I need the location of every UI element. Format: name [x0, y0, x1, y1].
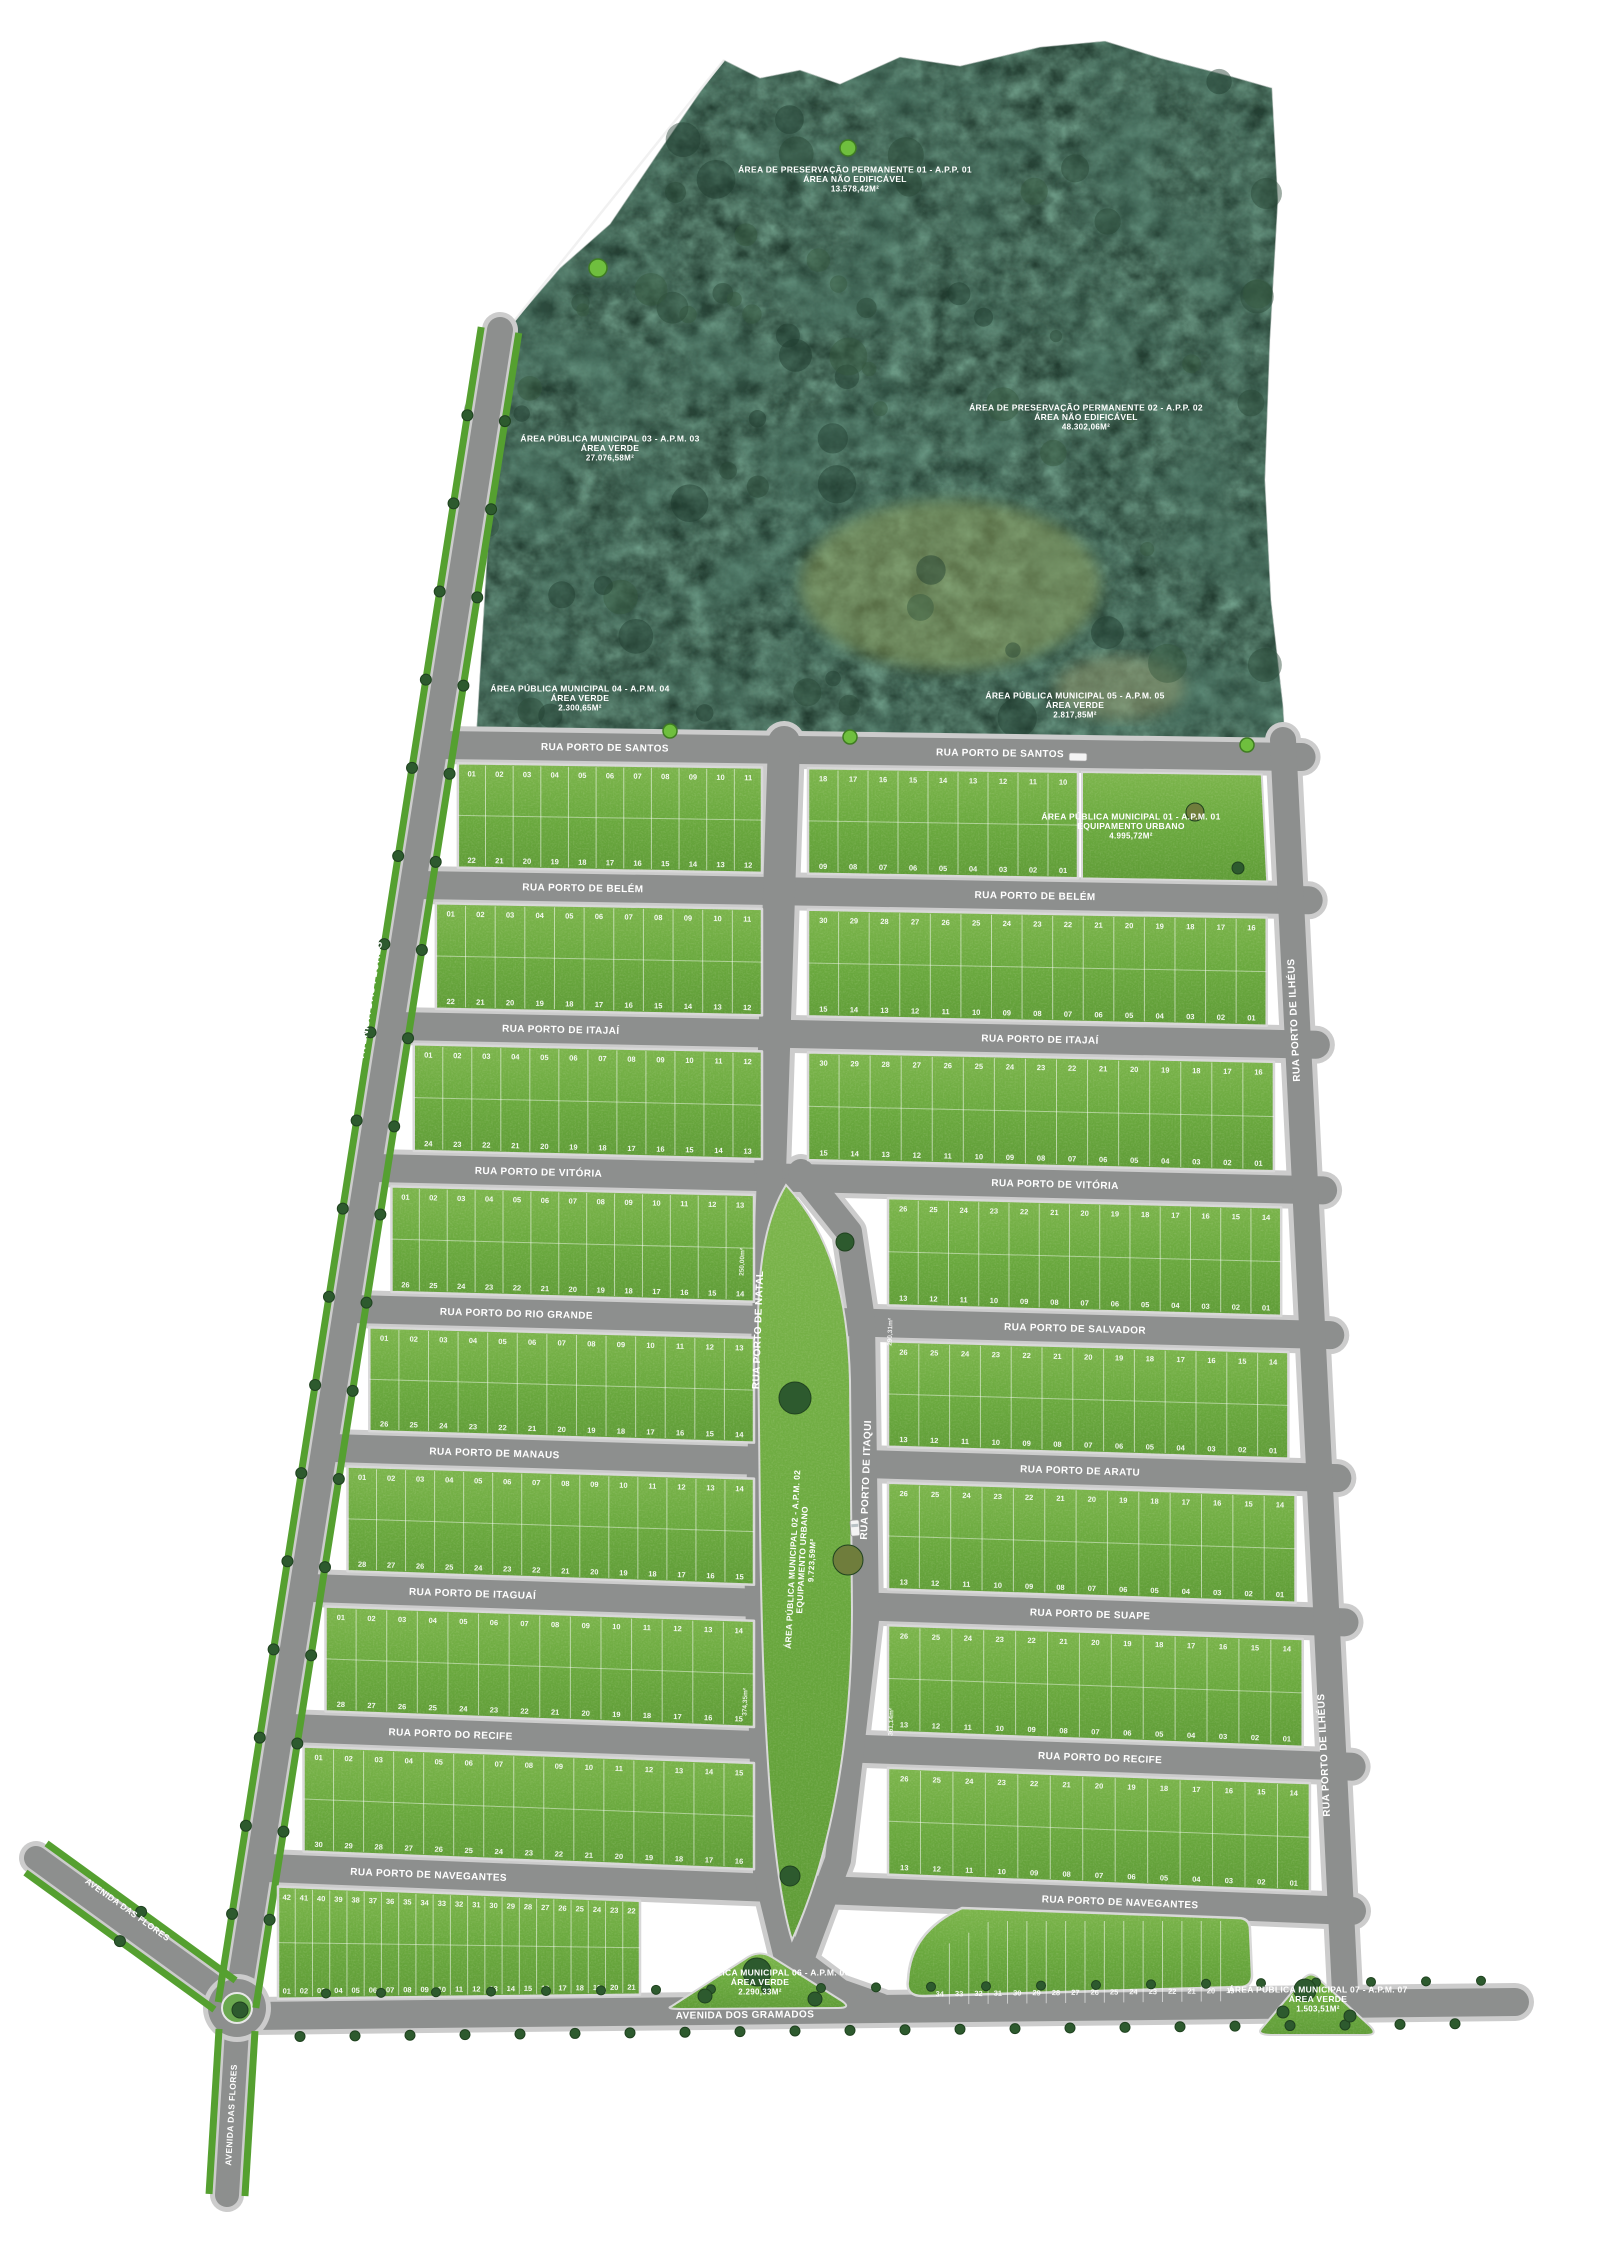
lot-number: 25: [972, 918, 980, 927]
lot-number: 03: [506, 910, 514, 919]
lot-number: 02: [1238, 1445, 1247, 1454]
forest-canopy: [517, 376, 542, 401]
lot-number: 08: [1056, 1583, 1065, 1592]
site-plan-map: 0122022103200419051806170716081509141013…: [0, 0, 1600, 2241]
lot-number: 05: [1146, 1442, 1155, 1451]
lot-number: 06: [909, 863, 917, 872]
car: [850, 1520, 860, 1537]
lot-number: 13: [735, 1343, 744, 1352]
lot-number: 21: [1053, 1352, 1062, 1361]
lot-number: 11: [965, 1866, 973, 1875]
lot-number: 12: [999, 777, 1007, 786]
lot-number: 10: [990, 1296, 999, 1305]
forest-canopy: [1148, 644, 1187, 683]
tree: [735, 2027, 745, 2037]
lot-number: 10: [997, 1867, 1006, 1876]
lot-number: 18: [1186, 922, 1194, 931]
label-apm04-area: 2.300,65M²: [558, 704, 602, 713]
tree: [833, 1545, 863, 1575]
lot-number: 09: [1030, 1868, 1039, 1877]
lot-number: 23: [453, 1140, 462, 1149]
tree: [323, 1291, 334, 1302]
forest-canopy: [665, 182, 686, 203]
lot-number: 03: [523, 770, 531, 779]
forest-canopy: [635, 273, 668, 306]
lot-number: 18: [675, 1854, 684, 1863]
tree: [310, 1379, 321, 1390]
lot-number: 20: [1130, 1065, 1139, 1074]
lot-number: 16: [1213, 1498, 1222, 1507]
tree: [114, 1936, 125, 1947]
lot-number: 17: [705, 1855, 714, 1864]
lot-number: 11: [455, 1985, 463, 1994]
lot-number: 07: [569, 1197, 578, 1206]
lot-number: 21: [541, 1284, 550, 1293]
lot-number: 05: [578, 771, 586, 780]
lot-number: 16: [633, 859, 641, 868]
lot-number: 16: [1219, 1642, 1228, 1651]
lot-number: 01: [358, 1473, 367, 1482]
forest-canopy: [1182, 354, 1201, 373]
lot-number: 22: [482, 1141, 491, 1150]
lot-number: 12: [931, 1579, 940, 1588]
lot-number: 14: [735, 1484, 744, 1493]
lot-number: 09: [624, 1198, 633, 1207]
lot-number: 16: [1225, 1786, 1234, 1795]
lot-number: 22: [627, 1906, 636, 1915]
lot-number: 25: [575, 1904, 584, 1913]
label-apm01-line1: ÁREA PÚBLICA MUNICIPAL 01 - A.P.M. 01: [1041, 811, 1220, 822]
tree: [472, 592, 483, 603]
lot-number: 07: [1084, 1441, 1093, 1450]
lot-number: 05: [351, 1986, 360, 1995]
lot-number: 25: [929, 1205, 938, 1214]
lot-number: 15: [819, 1148, 828, 1157]
lot-number: 09: [1006, 1153, 1015, 1162]
lot-number: 11: [714, 1056, 722, 1065]
lot-number: 17: [1187, 1641, 1196, 1650]
lot-number: 09: [581, 1621, 590, 1630]
lot-number: 12: [932, 1721, 941, 1730]
forest-canopy: [793, 678, 821, 706]
lot-number: 08: [1050, 1298, 1059, 1307]
tree: [790, 2026, 800, 2036]
tree: [900, 2025, 910, 2035]
label-apm03-line1: ÁREA PÚBLICA MUNICIPAL 03 - A.P.M. 03: [520, 433, 699, 444]
lot-number: 20: [569, 1285, 578, 1294]
tree: [448, 498, 459, 509]
forest-canopy: [1243, 279, 1273, 309]
lot-number: 28: [337, 1700, 346, 1709]
forest-canopy: [514, 405, 530, 421]
lot-number: 10: [652, 1199, 661, 1208]
lot-number: 26: [899, 1489, 908, 1498]
lot-number: 19: [612, 1710, 621, 1719]
tree: [292, 1738, 303, 1749]
lot-number: 08: [1059, 1726, 1068, 1735]
lot-number: 08: [403, 1985, 412, 1994]
tree: [845, 2025, 855, 2035]
lot-number: 14: [1269, 1358, 1278, 1367]
lot-number: 19: [587, 1426, 596, 1435]
tree: [982, 1982, 991, 1991]
lot-number: 04: [469, 1336, 478, 1345]
lot-number: 01: [380, 1334, 389, 1343]
tree: [227, 1908, 238, 1919]
lot-number: 04: [1155, 1011, 1164, 1020]
car-body: [850, 1520, 860, 1537]
lot-number: 16: [1207, 1356, 1216, 1365]
lot-number: 05: [1130, 1156, 1139, 1165]
lot-number: 25: [930, 1348, 939, 1357]
lot-number: 13: [704, 1625, 713, 1634]
lot-number: 27: [911, 917, 919, 926]
label-apm06-area: 2.290,33M²: [738, 1988, 782, 1997]
lot-number: 17: [595, 1000, 603, 1009]
lot-number: 02: [1244, 1589, 1253, 1598]
lot-number: 03: [457, 1194, 466, 1203]
lot-number: 24: [494, 1847, 503, 1856]
lot-number: 15: [705, 1429, 714, 1438]
lot-number: 28: [524, 1902, 533, 1911]
lot-number: 12: [743, 1057, 752, 1066]
tree: [515, 2029, 525, 2039]
lot-number: 14: [939, 776, 948, 785]
lot-area-label: 250,00m²: [739, 1247, 747, 1276]
lot-number: 06: [528, 1338, 537, 1347]
lot-number: 09: [1027, 1725, 1036, 1734]
lot-number: 02: [1217, 1013, 1225, 1022]
lot-number: 18: [643, 1711, 652, 1720]
lot-number: 07: [633, 772, 641, 781]
lot-number: 20: [1091, 1638, 1100, 1647]
lot-number: 13: [713, 1002, 721, 1011]
lot-number: 27: [404, 1843, 413, 1852]
street-label-gramados: AVENIDA DOS GRAMADOS: [676, 2009, 815, 2021]
lot-number: 13: [743, 1147, 752, 1156]
label-apm06-line1: ÁREA PÚBLICA MUNICIPAL 06 - A.P.M. 06: [670, 1967, 849, 1978]
lot-number: 17: [1192, 1785, 1201, 1794]
lot-number: 05: [540, 1053, 549, 1062]
tree: [375, 1209, 386, 1220]
lot-number: 23: [610, 1906, 619, 1915]
lot-number: 18: [578, 858, 586, 867]
lot-number: 01: [1276, 1590, 1285, 1599]
tree: [1065, 2023, 1075, 2033]
lot-number: 14: [1262, 1213, 1271, 1222]
lot-number: 22: [1022, 1351, 1031, 1360]
lot-number: 02: [344, 1754, 353, 1763]
street-label-h1-right: RUA PORTO DE SANTOS: [936, 747, 1064, 760]
forest-canopy: [974, 308, 993, 327]
lot-number: 16: [704, 1713, 713, 1722]
lot-number: 14: [506, 1984, 516, 1993]
lot-number: 27: [541, 1903, 550, 1912]
forest-canopy: [742, 304, 761, 323]
lot-number: 06: [595, 912, 603, 921]
tree: [282, 1556, 293, 1567]
lot-number: 06: [1127, 1872, 1136, 1881]
lot-number: 14: [850, 1005, 859, 1014]
lot-number: 23: [1033, 920, 1041, 929]
lot-number: 18: [1155, 1640, 1164, 1649]
lot-number: 19: [550, 857, 558, 866]
lot-number: 02: [453, 1051, 462, 1060]
tree: [351, 1115, 362, 1126]
lot-number: 08: [849, 862, 857, 871]
lot-number: 12: [677, 1482, 686, 1491]
lot-number: 10: [585, 1763, 594, 1772]
lot-number: 05: [513, 1195, 522, 1204]
tree: [1277, 2006, 1289, 2018]
lot-number: 21: [1056, 1494, 1065, 1503]
lot-number: 23: [485, 1283, 494, 1292]
forest-canopy: [830, 275, 847, 292]
label-app01-line2: ÁREA NÃO EDIFICÁVEL: [803, 174, 907, 184]
lot-number: 07: [520, 1619, 529, 1628]
lot-number: 18: [617, 1427, 626, 1436]
tree: [1147, 1980, 1156, 1989]
tree: [296, 1468, 307, 1479]
tree: [1092, 1980, 1101, 1989]
lot-number: 23: [997, 1778, 1006, 1787]
lot-number: 08: [661, 772, 669, 781]
lot-number: 06: [490, 1618, 499, 1627]
lot-number: 22: [467, 856, 475, 865]
lot-number: 13: [899, 1578, 908, 1587]
lot-number: 20: [523, 857, 531, 866]
lot-number: 08: [654, 913, 662, 922]
lot-number: 41: [300, 1893, 309, 1902]
lot-number: 33: [438, 1899, 447, 1908]
lot-number: 29: [344, 1841, 353, 1850]
tree: [361, 1297, 372, 1308]
lot-number: 08: [1053, 1440, 1062, 1449]
lot-number: 30: [489, 1901, 498, 1910]
lot-number: 05: [565, 911, 573, 920]
lot-number: 24: [962, 1491, 971, 1500]
lot-number: 24: [424, 1139, 433, 1148]
lot-number: 02: [387, 1474, 396, 1483]
lot-number: 03: [482, 1052, 491, 1061]
label-apm04-line2: ÁREA VERDE: [551, 693, 609, 703]
lot-number: 07: [386, 1985, 395, 1994]
lot-number: 06: [464, 1758, 473, 1767]
lot-number: 09: [1025, 1582, 1034, 1591]
tree: [570, 2028, 580, 2038]
forest-canopy: [1140, 542, 1154, 556]
lot-number: 08: [1062, 1870, 1071, 1879]
lot-number: 02: [1232, 1303, 1241, 1312]
lot-number: 21: [551, 1708, 560, 1717]
lot-number: 10: [646, 1341, 655, 1350]
lot-number: 28: [881, 1060, 890, 1069]
lot-number: 05: [1160, 1873, 1169, 1882]
lot-number: 14: [714, 1146, 723, 1155]
forest-canopy: [818, 423, 848, 453]
lot-number: 03: [398, 1615, 407, 1624]
tree: [1285, 2021, 1295, 2031]
lot-number: 02: [1029, 865, 1037, 874]
tree: [333, 1473, 344, 1484]
lot-number: 03: [416, 1475, 425, 1484]
block-row7-right: 2613251224112310220921082007190618051704…: [888, 1625, 1303, 1747]
lot-number: 06: [1123, 1728, 1132, 1737]
lot-number: 20: [557, 1425, 566, 1434]
lot-number: 14: [1283, 1644, 1292, 1653]
tree: [927, 1982, 936, 1991]
lot-number: 23: [993, 1492, 1002, 1501]
lot-number: 07: [532, 1478, 541, 1487]
lot-number: 15: [524, 1984, 533, 1993]
lot-number: 20: [1088, 1495, 1097, 1504]
lot-number: 22: [1025, 1493, 1034, 1502]
lot-number: 25: [445, 1562, 454, 1571]
tree: [460, 2030, 470, 2040]
lot-number: 20: [581, 1709, 590, 1718]
lot-number: 24: [959, 1206, 968, 1215]
tree: [680, 2027, 690, 2037]
lot-number: 12: [744, 861, 752, 870]
lot-number: 03: [1225, 1876, 1234, 1885]
tree: [487, 1987, 496, 1996]
tree: [780, 1866, 800, 1886]
lot-number: 04: [485, 1195, 494, 1204]
lot-number: 26: [416, 1562, 425, 1571]
lot-number: 16: [680, 1288, 689, 1297]
lot-number: 18: [819, 774, 827, 783]
tree: [1120, 2022, 1130, 2032]
vehicle-body: [1069, 753, 1087, 761]
tree: [416, 945, 427, 956]
lot-number: 23: [503, 1564, 512, 1573]
lot-number: 17: [1217, 923, 1225, 932]
lot-number: 18: [565, 999, 573, 1008]
tree: [625, 2028, 635, 2038]
lot-number: 20: [1084, 1353, 1093, 1362]
lot-number: 29: [506, 1902, 515, 1911]
lot-number: 39: [334, 1895, 343, 1904]
lot-number: 15: [1251, 1643, 1260, 1652]
tree: [350, 2031, 360, 2041]
lot-area-label: 374,35m²: [742, 1687, 750, 1716]
lot-number: 22: [520, 1706, 529, 1715]
forest-canopy: [666, 122, 701, 157]
lot-number: 14: [735, 1430, 744, 1439]
lot-number: 19: [1119, 1496, 1128, 1505]
lot-number: 23: [995, 1635, 1004, 1644]
tree: [779, 1382, 811, 1414]
tree: [808, 1992, 822, 2006]
lot-number: 26: [900, 1632, 909, 1641]
lot-number: 06: [1094, 1010, 1102, 1019]
lot-number: 33: [955, 1989, 964, 1998]
lot-number: 08: [596, 1197, 605, 1206]
fan-grass-texture: [908, 1908, 1252, 1996]
lot-number: 03: [439, 1335, 448, 1344]
tree: [306, 1650, 317, 1661]
label-apm07-line1: ÁREA PÚBLICA MUNICIPAL 07 - A.P.M. 07: [1228, 1984, 1407, 1995]
tree: [1037, 1981, 1046, 1990]
label-apm05-line2: ÁREA VERDE: [1046, 700, 1104, 710]
tree: [1010, 2024, 1020, 2034]
lot-number: 07: [1095, 1871, 1104, 1880]
tree: [1477, 1976, 1486, 1985]
lot-number: 19: [1115, 1353, 1124, 1362]
tree: [698, 1989, 712, 2003]
forest-canopy: [618, 619, 653, 654]
forest-canopy: [697, 160, 736, 199]
lot-number: 34: [935, 1989, 945, 1998]
lot-number: 10: [612, 1622, 621, 1631]
forest-canopy: [1021, 178, 1048, 205]
lot-number: 23: [525, 1848, 534, 1857]
lot-number: 01: [1247, 1013, 1255, 1022]
block-row3-right: 3015291428132712261125102409230822072106…: [808, 1052, 1274, 1171]
tree: [337, 1203, 348, 1214]
lot-number: 08: [627, 1055, 636, 1064]
lot-number: 13: [675, 1766, 684, 1775]
forest-canopy: [873, 401, 888, 416]
lot-number: 23: [992, 1350, 1001, 1359]
lot-number: 27: [913, 1060, 922, 1069]
block-row2-right: 3015291428132712261125102409230822072106…: [808, 910, 1267, 1026]
lot-number: 14: [1276, 1500, 1285, 1509]
lot-number: 21: [1099, 1064, 1108, 1073]
lot-number: 04: [1182, 1587, 1191, 1596]
lot-number: 04: [1161, 1157, 1170, 1166]
lot-number: 13: [716, 860, 724, 869]
block-row6-right: 2613251224112310220921082007190618051704…: [888, 1483, 1296, 1603]
label-app02-line2: ÁREA NÃO EDIFICÁVEL: [1034, 412, 1138, 422]
lot-number: 15: [909, 776, 917, 785]
lot-number: 30: [314, 1840, 323, 1849]
lot-number: 18: [1150, 1497, 1159, 1506]
street-label-h1-left: RUA PORTO DE SANTOS: [541, 742, 669, 755]
lot-number: 05: [459, 1617, 468, 1626]
lot-number: 11: [962, 1580, 970, 1589]
lot-number: 31: [994, 1989, 1003, 1998]
forest-canopy: [1091, 616, 1124, 649]
tree: [393, 851, 404, 862]
tree-bright: [1240, 738, 1254, 752]
lot-number: 12: [913, 1151, 922, 1160]
lot-number: 25: [428, 1703, 437, 1712]
lot-number: 16: [676, 1428, 685, 1437]
tree: [278, 1826, 289, 1837]
forest-canopy: [916, 555, 945, 584]
lot-number: 18: [598, 1143, 607, 1152]
lot-number: 07: [598, 1054, 607, 1063]
lot-number: 14: [1289, 1788, 1298, 1797]
lot-number: 17: [849, 775, 857, 784]
forest-canopy: [1248, 648, 1282, 682]
lot-number: 08: [1033, 1009, 1041, 1018]
lot-number: 22: [498, 1423, 507, 1432]
lot-number: 13: [900, 1863, 909, 1872]
tree: [389, 1121, 400, 1132]
label-apm01-area: 4.995,72M²: [1109, 832, 1153, 841]
lot-number: 17: [1182, 1497, 1191, 1506]
tree: [264, 1914, 275, 1925]
lot-number: 25: [409, 1420, 418, 1429]
block-row7-left: 0128022703260425052406230722082109201019…: [326, 1606, 754, 1726]
lot-number: 40: [317, 1894, 326, 1903]
car-windshield: [851, 1524, 858, 1527]
lot-number: 26: [434, 1845, 443, 1854]
forest-canopy: [775, 105, 804, 134]
label-apm05-line1: ÁREA PÚBLICA MUNICIPAL 05 - A.P.M. 05: [985, 690, 1164, 701]
